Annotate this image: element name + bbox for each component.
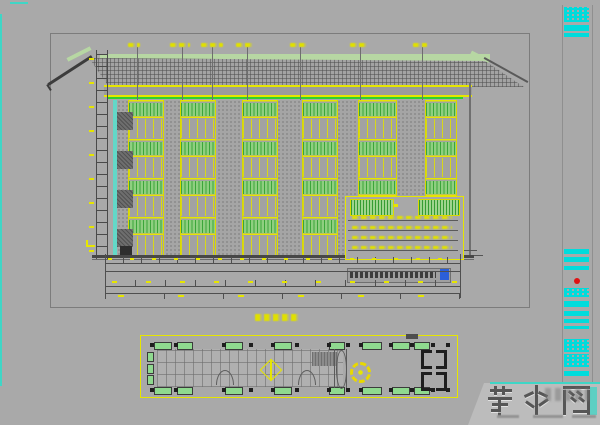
dim-row1-line xyxy=(105,263,460,264)
window-bay-2 xyxy=(180,100,216,256)
dim-ladder-label xyxy=(89,130,94,132)
plan-column-dot-top-6 xyxy=(295,343,299,347)
plan-column-dot-top-13 xyxy=(446,343,450,347)
plan-window-top-4 xyxy=(274,342,292,350)
watermark-glyph-ruo-stroke-6 xyxy=(498,400,501,416)
plan-column-dot-bottom-10 xyxy=(389,388,393,392)
titleblock-text-block-9 xyxy=(564,311,589,316)
plan-divider-line-1 xyxy=(334,349,335,388)
plan-column-dot-top-12 xyxy=(431,343,435,347)
watermark-glyph-ruo-stroke-3 xyxy=(502,386,505,395)
watermark-glyph-wang-stroke-8 xyxy=(573,410,587,413)
axis-label-marker-4 xyxy=(236,43,254,47)
plan-window-top-3 xyxy=(225,342,243,350)
detail-dim-line-2 xyxy=(348,230,458,231)
titleblock-border-right xyxy=(592,5,593,383)
bay-window-mullions xyxy=(243,100,277,256)
roof-fascia-band xyxy=(104,85,472,97)
plan-column-dot-bottom-3 xyxy=(222,388,226,392)
dim-ladder-label xyxy=(89,202,94,204)
viewport-edge-top xyxy=(10,2,28,4)
plan-column-dot-bottom-2 xyxy=(174,388,178,392)
roof-tile-hatch xyxy=(86,58,526,87)
axis-label-marker-2 xyxy=(170,43,190,47)
plan-column-dot-top-7 xyxy=(327,343,331,347)
watermark-faint-overlay xyxy=(545,388,589,401)
plan-window-bottom-4 xyxy=(274,387,292,395)
plan-window-top-5 xyxy=(329,342,345,350)
window-bay-4 xyxy=(302,100,338,256)
window-bay-3 xyxy=(242,100,278,256)
left-wall-block-1 xyxy=(117,112,133,130)
plan-window-bottom-6 xyxy=(362,387,382,395)
plan-column-dot-top-2 xyxy=(174,343,178,347)
watermark-sub-smudge-3 xyxy=(572,415,596,418)
plan-column-dot-bottom-9 xyxy=(359,388,363,392)
detail-dim-line-4 xyxy=(348,250,458,251)
dim-ladder-label xyxy=(89,226,94,228)
detail-dim-label-3 xyxy=(352,236,452,239)
plan-column-dot-top-3 xyxy=(222,343,226,347)
detail-dim-label-1 xyxy=(352,216,452,219)
titleblock-text-block-7 xyxy=(564,288,589,297)
plan-window-bottom-7 xyxy=(392,387,410,395)
plan-window-left-1 xyxy=(147,352,154,362)
axis-label-marker-7 xyxy=(413,43,427,47)
detail-dim-label-4 xyxy=(352,246,452,249)
titleblock-text-block-3 xyxy=(564,33,589,37)
roof-eave-green-line xyxy=(107,97,463,99)
titleblock-text-block-10 xyxy=(564,319,589,323)
titleblock-text-block-1 xyxy=(564,7,589,22)
dim-ladder-label xyxy=(89,154,94,156)
titleblock-red-seal xyxy=(574,278,580,284)
plan-column-dot-bottom-6 xyxy=(295,388,299,392)
plan-window-bottom-3 xyxy=(225,387,243,395)
bay-window-mullions xyxy=(129,100,163,256)
dim-row2-line xyxy=(105,271,460,272)
dim-ladder-ticks xyxy=(96,54,108,258)
dim-ladder-label xyxy=(89,250,94,252)
dim-ladder-label xyxy=(89,106,94,108)
plan-window-bottom-1 xyxy=(154,387,172,395)
watermark-glyph-ruo-stroke-2 xyxy=(494,386,497,395)
detail-dim-label-2 xyxy=(352,226,452,229)
note-box-text xyxy=(350,272,436,278)
axis-label-marker-6 xyxy=(350,43,368,47)
dim-row3-values xyxy=(112,281,457,283)
dim-row4-values xyxy=(118,295,453,297)
plan-column-dot-top-11 xyxy=(410,343,414,347)
titleblock-text-block-13 xyxy=(564,354,589,367)
plan-gear-symbol xyxy=(350,362,371,383)
plan-window-left-2 xyxy=(147,364,154,374)
viewport-edge-left xyxy=(0,14,2,386)
plan-column-dot-top-8 xyxy=(346,343,350,347)
bay-window-mullions xyxy=(181,100,215,256)
bay-window-mullions xyxy=(303,100,337,256)
detail-dot-row xyxy=(394,204,416,207)
plan-window-bottom-2 xyxy=(177,387,193,395)
dim-row3-line xyxy=(105,286,460,287)
plan-window-left-3 xyxy=(147,375,154,385)
titleblock-text-block-11 xyxy=(564,326,589,329)
level-mark xyxy=(86,240,95,247)
axis-label-marker-1 xyxy=(128,43,140,47)
titleblock-border-left xyxy=(562,5,563,383)
titleblock-text-block-2 xyxy=(564,25,589,31)
detail-dim-line-1 xyxy=(348,220,458,221)
titleblock-text-block-8 xyxy=(564,301,589,307)
plan-column-dot-bottom-1 xyxy=(150,388,154,392)
plan-column-dot-bottom-4 xyxy=(249,388,253,392)
detail-green-block-2 xyxy=(418,199,460,216)
left-wall-block-3 xyxy=(117,190,133,208)
dim-ladder-label xyxy=(89,58,94,60)
plan-column-dot-bottom-7 xyxy=(327,388,331,392)
dim-row1-values xyxy=(108,258,457,260)
watermark-top-accent-line xyxy=(490,382,600,384)
axis-label-marker-5 xyxy=(290,43,306,47)
dim-ladder-label xyxy=(89,178,94,180)
plan-bracket-3 xyxy=(436,350,447,369)
plan-column-dot-top-1 xyxy=(150,343,154,347)
left-wall-block-4 xyxy=(117,229,133,247)
watermark-glyph-ruo-stroke-7 xyxy=(491,409,501,412)
plan-column-dot-top-4 xyxy=(249,343,253,347)
plan-column-dot-bottom-11 xyxy=(410,388,414,392)
cad-viewport: 若水网 若 水 网 xyxy=(0,0,600,425)
detail-dim-line-3 xyxy=(348,240,458,241)
plan-divider-lens xyxy=(336,350,347,389)
watermark-glyph-shui-stroke-1 xyxy=(535,385,538,415)
dim-end-right xyxy=(460,254,461,298)
plan-column-dot-top-9 xyxy=(359,343,363,347)
plan-column-dot-bottom-8 xyxy=(346,388,350,392)
plan-bracket-1 xyxy=(421,350,432,369)
titleblock-text-block-6 xyxy=(564,266,589,270)
elevation-caption xyxy=(255,314,299,321)
titleblock-text-block-14 xyxy=(564,371,589,376)
plan-window-top-6 xyxy=(362,342,382,350)
plan-column-dot-top-10 xyxy=(389,343,393,347)
left-wall-block-2 xyxy=(117,151,133,169)
watermark-sub-smudge-2 xyxy=(533,415,563,418)
titleblock-text-block-5 xyxy=(564,257,589,262)
plan-window-top-1 xyxy=(154,342,172,350)
left-wall-door-block xyxy=(120,246,132,255)
titleblock-text-block-12 xyxy=(564,339,589,352)
plan-window-top-8 xyxy=(414,342,430,350)
plan-top-dark-block xyxy=(406,334,418,339)
plan-column-dot-bottom-5 xyxy=(271,388,275,392)
plan-bracket-4 xyxy=(436,372,447,391)
window-bay-1 xyxy=(128,100,164,256)
plan-window-top-7 xyxy=(392,342,410,350)
plan-window-top-2 xyxy=(177,342,193,350)
watermark-sub-smudge-1 xyxy=(497,415,519,418)
axis-label-marker-3 xyxy=(201,43,223,47)
plan-bracket-2 xyxy=(421,372,432,391)
plan-column-dot-top-5 xyxy=(271,343,275,347)
right-wall-line xyxy=(469,83,471,255)
titleblock-text-block-4 xyxy=(564,249,589,254)
detail-green-block-1 xyxy=(350,199,394,216)
dim-ladder-label xyxy=(89,82,94,84)
